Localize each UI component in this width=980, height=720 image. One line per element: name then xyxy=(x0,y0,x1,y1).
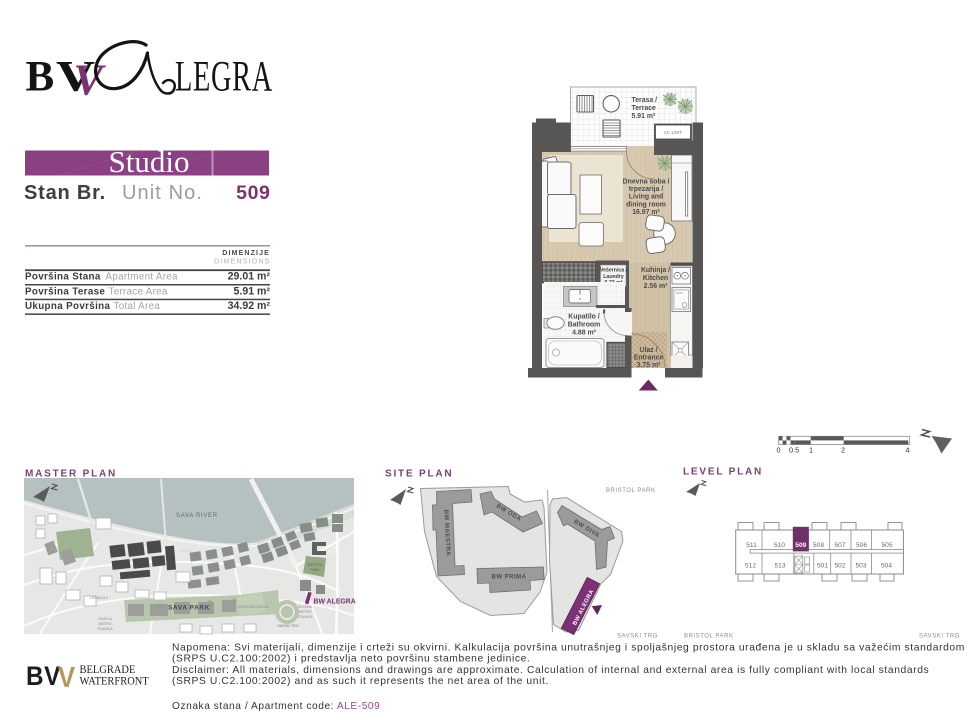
svg-text:GAZELA: GAZELA xyxy=(98,617,113,621)
svg-text:Vešernica /: Vešernica / xyxy=(600,268,628,274)
svg-text:Ukupna Površina: Ukupna Površina xyxy=(25,301,110,312)
svg-text:METRO: METRO xyxy=(99,622,112,626)
svg-text:2: 2 xyxy=(841,446,845,455)
svg-text:BRISTOL: BRISTOL xyxy=(307,563,322,567)
svg-text:V: V xyxy=(58,661,75,694)
svg-text:LEŠNICA II: LEŠNICA II xyxy=(90,595,108,600)
svg-text:PARK: PARK xyxy=(310,568,320,572)
svg-text:Apartment Area: Apartment Area xyxy=(106,272,179,283)
svg-text:SAVSKI TRG: SAVSKI TRG xyxy=(919,634,960,640)
svg-text:BW ALEGRA: BW ALEGRA xyxy=(314,599,356,606)
svg-text:METRO: METRO xyxy=(299,610,312,614)
svg-text:Laundry: Laundry xyxy=(603,274,624,280)
svg-text:34.92 m²: 34.92 m² xyxy=(228,300,271,312)
svg-text:5.91 m²: 5.91 m² xyxy=(632,113,656,120)
svg-text:B: B xyxy=(26,662,44,691)
svg-text:Dnevna soba i: Dnevna soba i xyxy=(623,179,670,186)
svg-text:Entrance: Entrance xyxy=(634,355,664,362)
svg-text:508: 508 xyxy=(813,542,824,549)
svg-text:510: 510 xyxy=(774,542,785,549)
svg-text:Kuhinja /: Kuhinja / xyxy=(641,267,670,274)
svg-text:(SRPS U.C2.100:2002) and as su: (SRPS U.C2.100:2002) and as such it repr… xyxy=(172,676,549,687)
svg-text:Living and: Living and xyxy=(629,194,663,201)
svg-text:Oznaka stana / Apartment code:: Oznaka stana / Apartment code: ALE-509 xyxy=(172,701,380,712)
svg-text:Kitchen: Kitchen xyxy=(643,275,668,282)
svg-text:WATERFRONT: WATERFRONT xyxy=(80,675,150,687)
svg-text:505: 505 xyxy=(881,542,892,549)
svg-text:29.01 m²: 29.01 m² xyxy=(228,271,271,283)
svg-text:507: 507 xyxy=(834,542,845,549)
svg-text:CRKVA: CRKVA xyxy=(179,549,192,553)
svg-text:Unit No.: Unit No. xyxy=(122,182,203,204)
svg-text:Terasa /: Terasa / xyxy=(632,97,658,104)
svg-text:Stan Br.: Stan Br. xyxy=(24,182,106,204)
svg-text:BRISTOL PARK: BRISTOL PARK xyxy=(684,634,734,640)
svg-text:4.88 m²: 4.88 m² xyxy=(572,330,596,337)
svg-text:(SRPS U.C2.100:2002) i predsta: (SRPS U.C2.100:2002) i predstavlja neto … xyxy=(172,654,530,665)
svg-text:3.75 m²: 3.75 m² xyxy=(637,362,661,369)
svg-text:503: 503 xyxy=(855,563,866,570)
svg-text:1: 1 xyxy=(809,446,813,455)
svg-text:509: 509 xyxy=(236,182,270,204)
svg-text:16.97 m²: 16.97 m² xyxy=(632,209,660,216)
svg-text:0: 0 xyxy=(777,446,781,455)
svg-text:SAVA RIVER: SAVA RIVER xyxy=(176,513,218,519)
svg-text:Napomena: Svi materijali, dime: Napomena: Svi materijali, dimenzije i cr… xyxy=(172,643,965,654)
svg-text:STANICA: STANICA xyxy=(297,615,313,619)
svg-text:SITE PLAN: SITE PLAN xyxy=(385,469,453,480)
svg-text:BW PRIMA: BW PRIMA xyxy=(492,575,527,581)
svg-text:OSNOVNA ŠKOLA: OSNOVNA ŠKOLA xyxy=(238,604,269,609)
svg-text:SAVSKI TRG: SAVSKI TRG xyxy=(617,634,658,640)
svg-text:Disclaimer: All materials, dim: Disclaimer: All materials, dimensions an… xyxy=(172,665,929,676)
svg-text:SAVSKI TRG: SAVSKI TRG xyxy=(277,624,298,628)
svg-text:Bathroom: Bathroom xyxy=(568,322,601,329)
svg-text:Terrace Area: Terrace Area xyxy=(109,286,168,297)
svg-text:501: 501 xyxy=(817,563,828,570)
svg-text:STANICA: STANICA xyxy=(97,627,113,631)
svg-text:LEGRA: LEGRA xyxy=(175,53,273,100)
svg-text:Površina Terase: Površina Terase xyxy=(25,286,105,297)
svg-text:2.56 m²: 2.56 m² xyxy=(644,283,668,290)
svg-text:Ulaz /: Ulaz / xyxy=(640,347,658,354)
svg-text:MASTER PLAN: MASTER PLAN xyxy=(25,469,117,480)
svg-text:SAVA PARK: SAVA PARK xyxy=(168,605,210,612)
svg-text:506: 506 xyxy=(856,542,867,549)
svg-text:Total Area: Total Area xyxy=(114,301,161,312)
svg-text:512: 512 xyxy=(745,563,756,570)
svg-text:5.91 m²: 5.91 m² xyxy=(233,285,270,297)
svg-text:dining room: dining room xyxy=(626,201,666,208)
svg-text:ZELENA: ZELENA xyxy=(298,605,313,609)
svg-text:509: 509 xyxy=(795,542,806,549)
svg-text:BRISTOL PARK: BRISTOL PARK xyxy=(606,488,656,494)
svg-text:504: 504 xyxy=(881,563,892,570)
svg-text:0.5: 0.5 xyxy=(789,446,799,455)
svg-text:B: B xyxy=(26,53,55,100)
svg-text:HOTEL: HOTEL xyxy=(328,550,340,554)
svg-text:513: 513 xyxy=(774,563,785,570)
svg-text:4: 4 xyxy=(906,446,910,455)
svg-text:AC UNIT: AC UNIT xyxy=(664,130,682,135)
svg-text:DIMENZIJE: DIMENZIJE xyxy=(222,250,270,257)
svg-text:Studio: Studio xyxy=(109,144,190,179)
svg-text:trpezarija /: trpezarija / xyxy=(629,186,664,193)
svg-text:511: 511 xyxy=(746,542,757,549)
svg-text:Kupatilo /: Kupatilo / xyxy=(568,314,599,321)
svg-text:502: 502 xyxy=(834,563,845,570)
svg-text:LEVEL PLAN: LEVEL PLAN xyxy=(683,467,763,478)
svg-text:Terrace: Terrace xyxy=(632,105,657,112)
svg-text:Površina Stana: Površina Stana xyxy=(25,272,101,283)
svg-text:V: V xyxy=(74,56,107,105)
svg-text:DIMENSIONS: DIMENSIONS xyxy=(214,259,270,266)
